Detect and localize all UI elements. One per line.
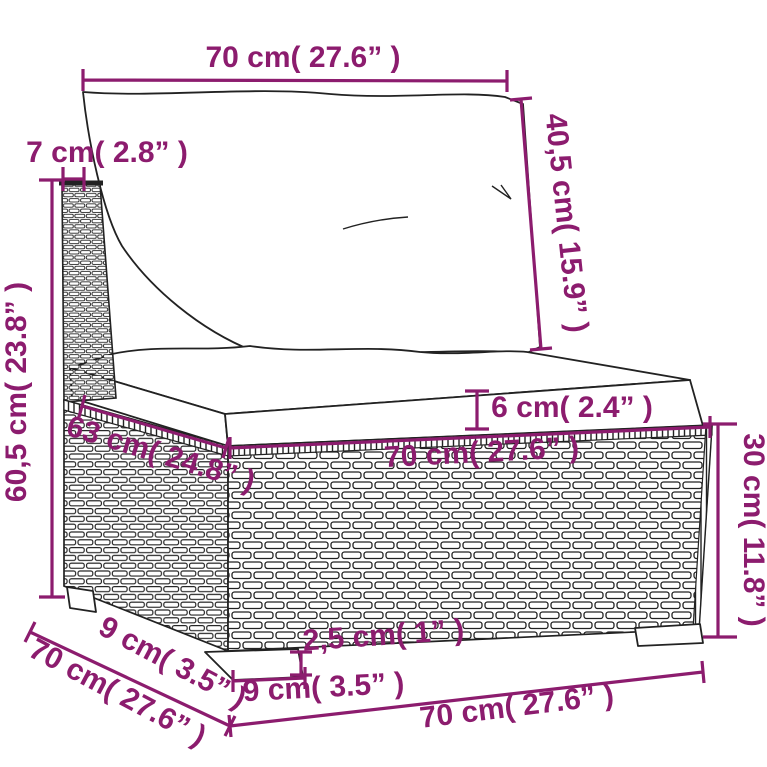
back-cushion [83,91,540,353]
dim-overall-height-label: 60,5 cm( 23.8” ) [0,282,33,502]
dim-back-cushion-height-label: 40,5 cm( 15.9” ) [539,112,595,334]
foot-back-left [67,587,96,612]
dim-top-width-label: 70 cm( 27.6” ) [205,41,400,74]
diagram-canvas: 70 cm( 27.6” ) 7 cm( 2.8” ) 60,5 cm( 23.… [0,0,767,767]
dim-base-height-label: 30 cm( 11.8” ) [737,433,767,626]
dim-foot-width-label: 9 cm( 3.5” ) [242,667,405,708]
dim-overall-height-line [39,180,65,597]
dim-seat-cushion-thickness-label: 6 cm( 2.4” ) [491,391,653,424]
back-panel-wicker [62,184,116,402]
foot-front-right [635,624,703,646]
dimension-diagram: 70 cm( 27.6” ) 7 cm( 2.8” ) 60,5 cm( 23.… [0,0,767,767]
dim-bottom-width-label: 70 cm( 27.6” ) [418,678,616,735]
sofa-drawing [59,91,712,680]
dim-back-thickness-label: 7 cm( 2.8” ) [26,136,188,169]
